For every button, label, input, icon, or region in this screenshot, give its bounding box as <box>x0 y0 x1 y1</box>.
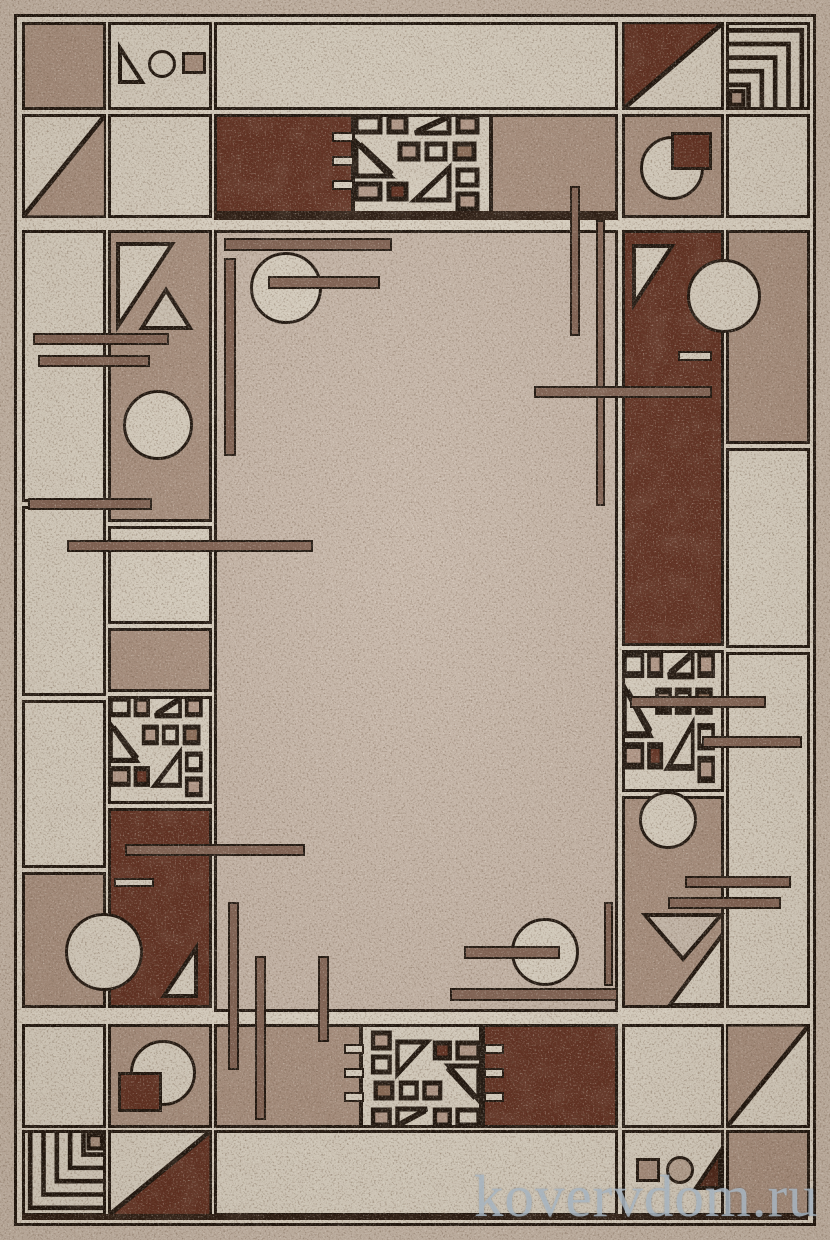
triangle-motif <box>632 244 674 306</box>
border-tile-mauve <box>490 114 618 218</box>
squares-triangles-cluster <box>352 114 492 218</box>
border-block-brown-comb <box>214 114 354 218</box>
triangle-motif <box>162 946 198 998</box>
border-tile-light <box>22 1024 106 1128</box>
border-circle <box>639 791 697 849</box>
squares-triangles-cluster <box>622 650 724 792</box>
border-bar <box>125 844 305 856</box>
field-bar <box>534 386 712 398</box>
separator-bar <box>214 211 618 220</box>
field-bar-vertical <box>255 956 266 1120</box>
comb-slot <box>344 1068 364 1078</box>
comb-slot <box>484 1092 504 1102</box>
diagonal-triangle <box>22 114 106 218</box>
border-tile-light <box>726 114 810 218</box>
border-tile-light <box>108 114 212 218</box>
field-bar <box>450 988 618 1001</box>
border-bar <box>38 355 150 367</box>
field-bar <box>224 238 392 251</box>
border-circle <box>65 913 143 991</box>
border-tile-diagonal-brown <box>108 1130 212 1216</box>
comb-slot <box>344 1044 364 1054</box>
border-tile-light <box>622 1024 724 1128</box>
pie-square-motif <box>118 1072 162 1112</box>
border-tile-light <box>22 700 106 868</box>
border-tile-light <box>726 448 810 648</box>
small-triangle-motif <box>118 46 144 84</box>
comb-slot <box>332 180 354 190</box>
border-tile-cluster <box>108 696 212 804</box>
border-circle <box>687 259 761 333</box>
border-bar <box>28 498 152 510</box>
border-tile-diagonal-brown <box>622 22 724 110</box>
squares-triangles-cluster <box>108 696 212 804</box>
border-bar <box>33 333 169 345</box>
diagonal-triangle <box>108 1130 212 1216</box>
field-bar-vertical <box>228 902 239 1070</box>
border-tile-light <box>22 506 106 696</box>
border-bar <box>67 540 313 552</box>
border-tile-mauve <box>108 628 212 692</box>
field-bar-vertical <box>604 902 613 986</box>
comb-slot <box>332 156 354 166</box>
border-tile-mauve <box>22 22 106 110</box>
field-bar-vertical <box>318 956 329 1042</box>
small-square-motif <box>182 52 206 74</box>
border-bar <box>685 876 791 888</box>
border-bar <box>702 736 802 748</box>
comb-slot <box>332 132 354 142</box>
center-field <box>214 230 618 1012</box>
squares-triangles-cluster <box>360 1024 482 1128</box>
diagonal-triangle <box>622 22 724 110</box>
border-tile-cluster <box>622 650 724 792</box>
field-bar-vertical <box>596 220 605 506</box>
border-tile-cluster <box>360 1024 482 1128</box>
comb-slot <box>484 1068 504 1078</box>
border-bar-light <box>678 351 712 361</box>
border-tile-cluster <box>352 114 492 218</box>
rug-photo: kovervdom.ru <box>0 0 830 1240</box>
field-bar-vertical <box>224 258 236 456</box>
nested-lines-motif <box>22 1130 106 1216</box>
triangle-motif <box>668 933 724 1007</box>
field-bar-vertical <box>570 186 580 336</box>
field-bar <box>268 276 380 289</box>
diagonal-triangle <box>726 1024 810 1128</box>
border-circle <box>123 390 193 460</box>
border-bar-light <box>114 878 154 887</box>
triangle-motif <box>140 288 192 330</box>
site-watermark: kovervdom.ru <box>474 1162 819 1231</box>
border-tile-corner-llines <box>22 1130 106 1216</box>
field-bar <box>464 946 560 959</box>
border-bar <box>630 696 766 708</box>
comb-slot <box>344 1092 364 1102</box>
comb-slot <box>484 1044 504 1054</box>
small-circle-motif <box>148 50 176 78</box>
border-tile-long-light <box>214 22 618 110</box>
border-tile-corner-llines <box>726 22 810 110</box>
border-tile-diagonal-mauve <box>22 114 106 218</box>
border-bar <box>668 897 781 909</box>
pie-square-motif <box>671 132 712 170</box>
border-tile-diagonal-mauve <box>726 1024 810 1128</box>
nested-lines-motif <box>726 22 810 110</box>
